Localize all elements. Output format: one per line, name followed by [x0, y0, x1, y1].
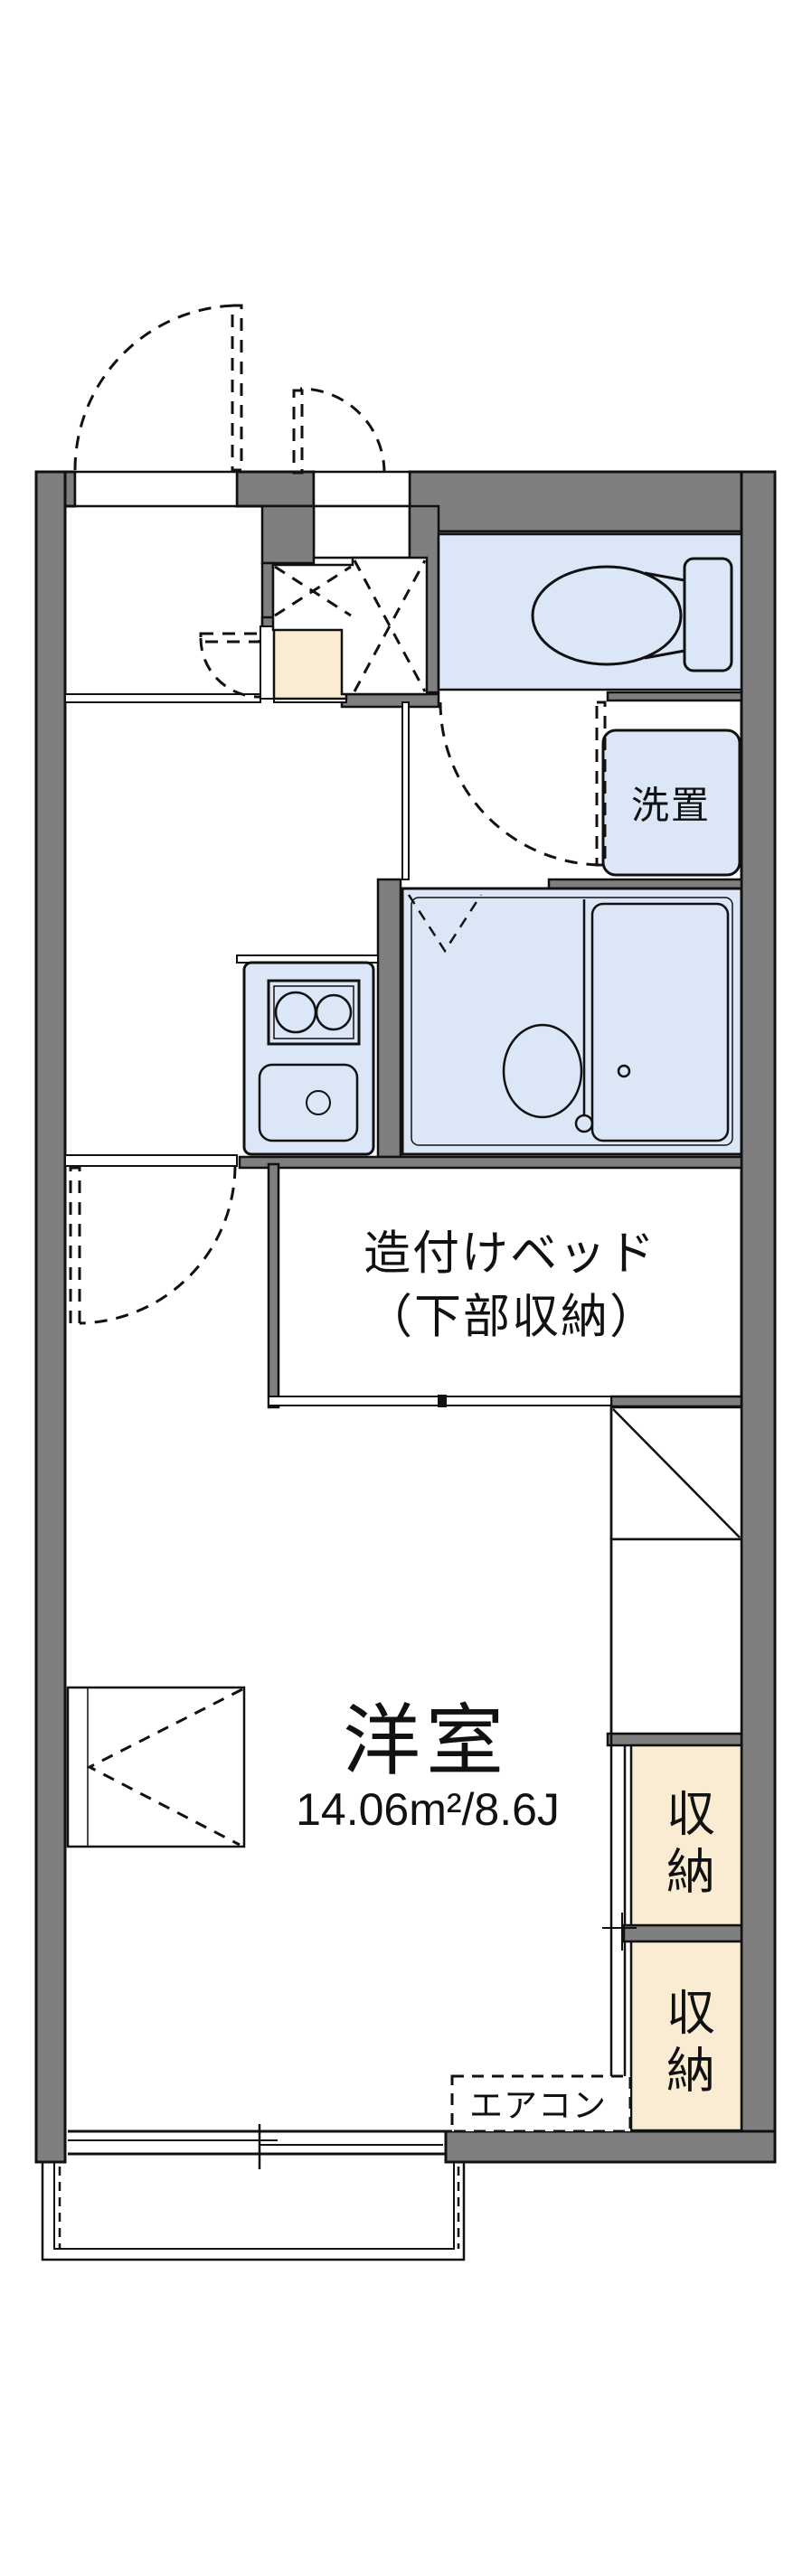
right-wall — [741, 472, 775, 2162]
casement-window — [68, 1688, 244, 1847]
bed-label-line2: （下部収納） — [365, 1279, 658, 1347]
hall-door-leaf — [201, 634, 260, 642]
room-door-arc — [80, 1166, 235, 1323]
top-wall-right — [410, 472, 775, 531]
aircon-label: エアコン — [469, 2078, 607, 2127]
wall-dk-washhall — [402, 702, 409, 879]
wall-bed-bottom-right — [611, 1396, 741, 1406]
genkan-floor — [274, 626, 346, 699]
bathroom — [402, 888, 741, 1154]
bottom-wall-right — [446, 2131, 775, 2162]
wall-hall-room — [65, 694, 260, 702]
wall-closet-bottom — [342, 694, 439, 707]
toilet-room — [439, 534, 741, 690]
trunk-door-threshold — [314, 472, 410, 506]
room-size-label: 14.06m²/8.6J — [296, 1783, 560, 1836]
kitchen-unit — [237, 955, 378, 1154]
storage-1-label: 収納 — [651, 1788, 722, 1904]
genkan-step — [260, 626, 274, 699]
wall-kitchen-bath — [378, 879, 401, 1157]
left-wall — [36, 472, 65, 2162]
washroom-door-arc — [440, 702, 603, 865]
room-door-leaf — [71, 1168, 80, 1323]
trunk-door-leaf — [294, 390, 302, 473]
wall-storage-divider — [624, 1925, 741, 1941]
balcony-outer-rail — [42, 2162, 464, 2260]
room-name-label: 洋室 — [343, 1678, 509, 1791]
storage-2-label: 収納 — [651, 1987, 722, 2102]
door-swings — [71, 306, 605, 1323]
casement-window-box — [68, 1688, 244, 1847]
entry-door-threshold — [75, 472, 237, 506]
wall-toilet-bottom — [608, 692, 741, 700]
wall-tick-bed — [438, 1395, 447, 1407]
balcony-window — [68, 2124, 446, 2169]
floor-plan: 洗置 造付けベッド （下部収納） 洋室 14.06m²/8.6J 収納 収納 エ… — [0, 0, 812, 2576]
balcony-inner-rail — [54, 2162, 454, 2249]
wall-closet-topleft — [262, 506, 314, 563]
plain-box — [611, 1539, 741, 1734]
washer-label: 洗置 — [631, 776, 711, 831]
wall-dk-room-door — [65, 1155, 237, 1166]
entry-door-leaf — [232, 306, 241, 470]
wall-column-mid — [608, 1734, 741, 1745]
hall-door-arc — [201, 638, 260, 697]
bed-label-line1: 造付けベッド — [364, 1216, 656, 1283]
trunk-door-alcove — [314, 506, 410, 558]
wall-bed-left — [269, 1164, 279, 1407]
wall-under-kitchen-bath — [240, 1157, 741, 1168]
entry-door-arc — [75, 306, 237, 470]
top-wall-mid — [237, 472, 314, 506]
trunk-door-arc — [300, 389, 384, 473]
balcony — [42, 2162, 464, 2260]
bathroom-floor — [402, 888, 741, 1154]
